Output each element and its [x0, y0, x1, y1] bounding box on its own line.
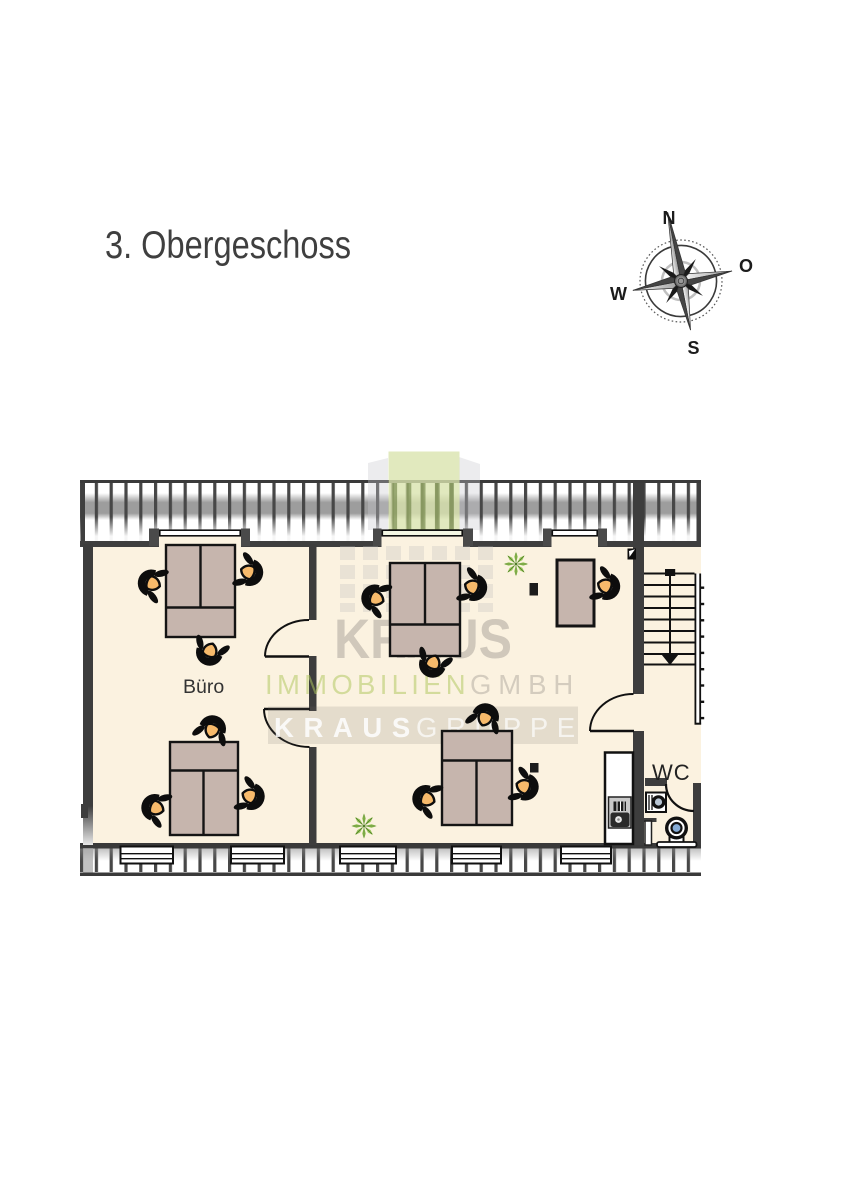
svg-text:W: W	[610, 284, 627, 304]
svg-text:Büro: Büro	[183, 676, 224, 698]
svg-text:KRAUS: KRAUS	[274, 712, 420, 743]
svg-text:O: O	[739, 256, 753, 276]
svg-text:S: S	[687, 338, 699, 358]
svg-text:3. Obergeschoss: 3. Obergeschoss	[105, 224, 351, 267]
svg-text:N: N	[663, 208, 676, 228]
svg-text:GMBH: GMBH	[470, 669, 580, 700]
svg-text:WC: WC	[652, 760, 691, 785]
